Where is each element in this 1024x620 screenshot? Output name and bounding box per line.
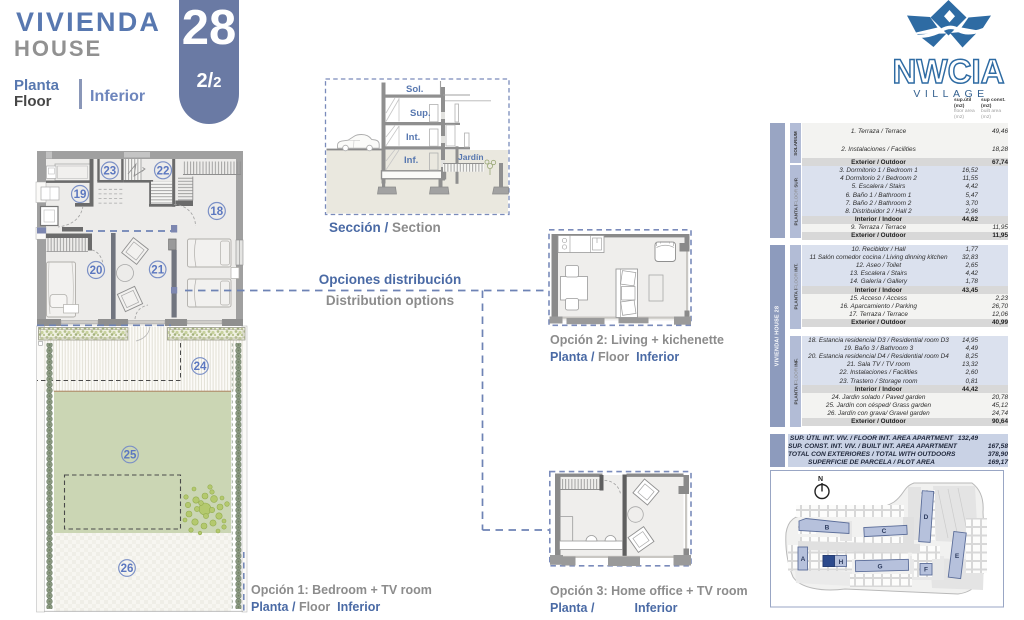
svg-text:F: F [924,567,928,574]
svg-text:Int.: Int. [406,132,420,143]
svg-text:C: C [882,528,887,535]
svg-text:A: A [801,556,806,563]
svg-text:G: G [877,564,882,571]
svg-text:24: 24 [194,361,207,373]
svg-text:19: 19 [74,189,87,201]
svg-text:23: 23 [103,166,116,178]
svg-text:B: B [825,525,830,532]
svg-text:22: 22 [157,165,170,177]
svg-text:Sol.: Sol. [406,84,423,95]
svg-text:N: N [818,476,823,483]
svg-text:H: H [839,559,844,566]
svg-text:Jardín: Jardín [458,152,484,162]
svg-text:20: 20 [90,265,103,277]
svg-text:VILLAGE: VILLAGE [913,88,988,100]
svg-text:NWCIA: NWCIA [893,53,1005,91]
svg-text:25: 25 [124,450,137,462]
svg-text:21: 21 [151,264,164,276]
svg-text:26: 26 [121,563,134,575]
svg-text:D: D [924,514,929,521]
svg-text:Sup.: Sup. [410,108,431,119]
svg-text:Inf.: Inf. [404,155,418,166]
svg-text:18: 18 [210,206,223,218]
svg-text:E: E [955,553,960,560]
